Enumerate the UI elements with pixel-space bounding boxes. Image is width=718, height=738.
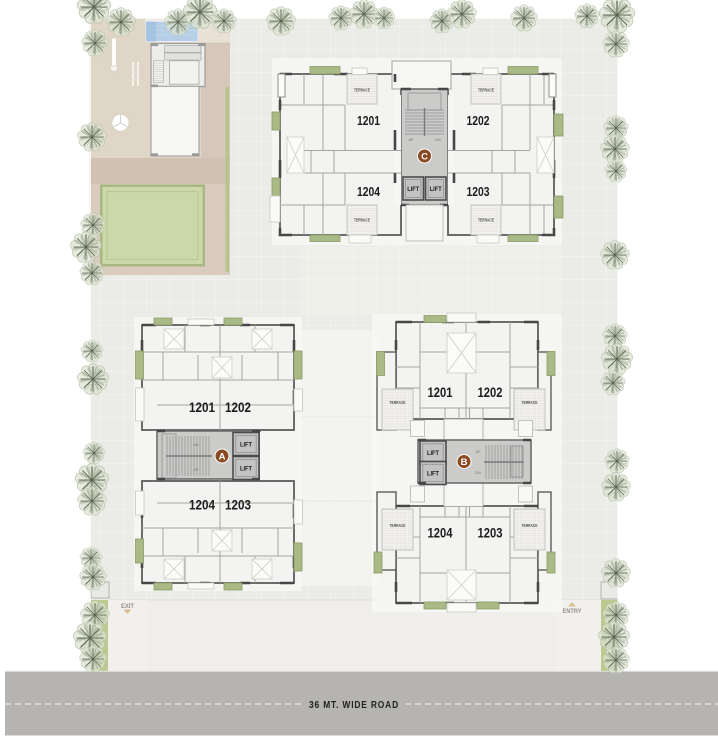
svg-text:TERRACE: TERRACE (390, 523, 406, 528)
svg-text:UP: UP (409, 138, 415, 142)
svg-text:1201: 1201 (189, 399, 215, 415)
svg-text:DN: DN (193, 443, 199, 447)
svg-text:TERRACE: TERRACE (354, 88, 370, 93)
svg-text:1202: 1202 (467, 113, 490, 128)
svg-text:A: A (219, 452, 226, 463)
svg-text:1201: 1201 (357, 113, 380, 128)
svg-text:DN: DN (435, 138, 441, 142)
svg-text:1204: 1204 (428, 525, 453, 541)
svg-text:UP: UP (194, 468, 200, 472)
svg-text:1202: 1202 (225, 399, 251, 415)
svg-text:1202: 1202 (478, 384, 503, 400)
svg-text:EXIT: EXIT (121, 603, 134, 610)
svg-text:UP: UP (476, 450, 482, 454)
svg-text:B: B (461, 457, 468, 468)
svg-text:ENTRY: ENTRY (563, 608, 583, 615)
svg-text:1203: 1203 (225, 497, 251, 513)
svg-text:TERRACE: TERRACE (478, 88, 494, 93)
svg-text:C: C (421, 152, 428, 163)
svg-text:TERRACE: TERRACE (354, 218, 370, 223)
svg-text:TERRACE: TERRACE (522, 523, 538, 528)
svg-text:1201: 1201 (428, 384, 453, 400)
svg-text:1204: 1204 (189, 497, 215, 513)
svg-text:1203: 1203 (467, 184, 490, 199)
svg-text:TERRACE: TERRACE (478, 218, 494, 223)
svg-text:36 MT. WIDE ROAD: 36 MT. WIDE ROAD (309, 700, 399, 711)
svg-text:DN: DN (475, 471, 481, 475)
svg-text:1203: 1203 (478, 525, 503, 541)
svg-text:TERRACE: TERRACE (390, 400, 406, 405)
svg-text:1204: 1204 (357, 184, 381, 199)
svg-text:TERRACE: TERRACE (522, 400, 538, 405)
